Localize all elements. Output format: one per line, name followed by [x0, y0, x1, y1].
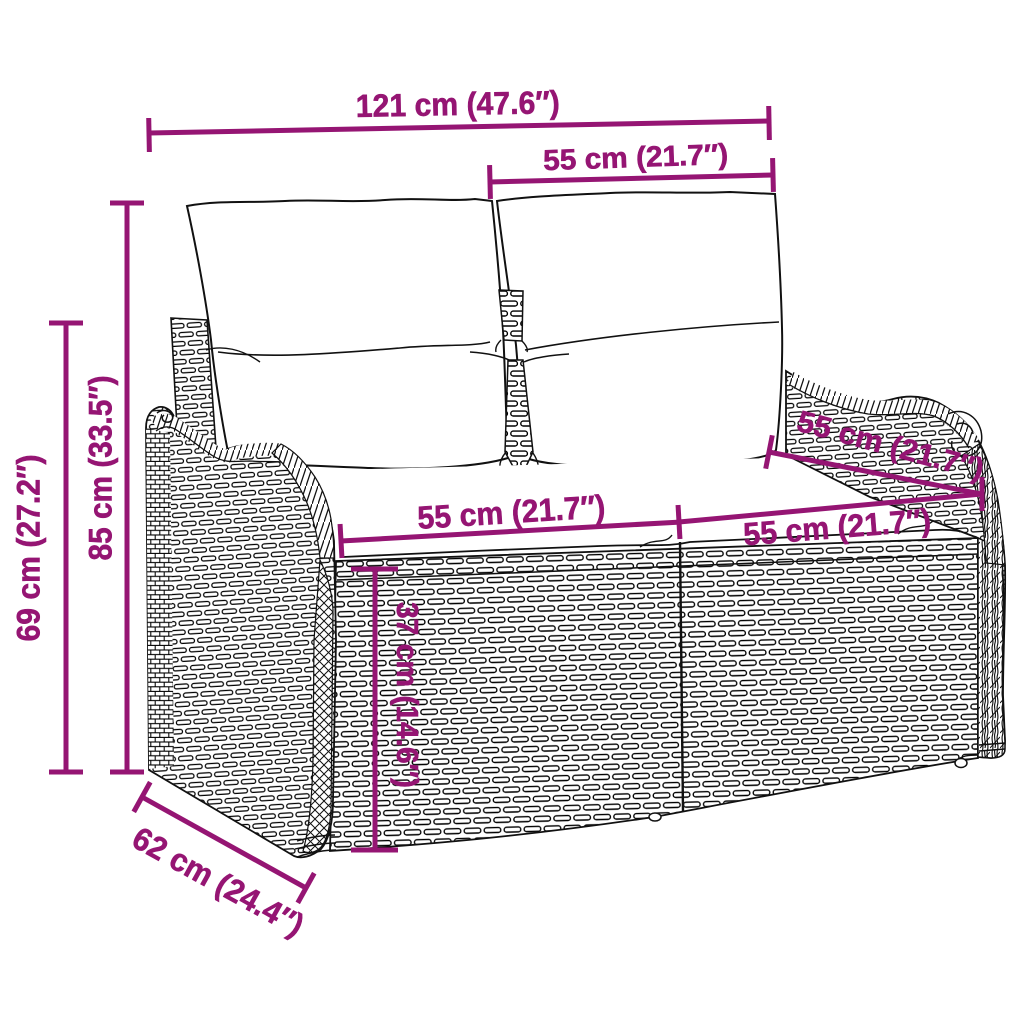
svg-text:55 cm (21.7″): 55 cm (21.7″) [543, 139, 729, 177]
svg-text:85 cm (33.5″): 85 cm (33.5″) [82, 376, 118, 561]
svg-text:69 cm (27.2″): 69 cm (27.2″) [10, 455, 46, 642]
svg-text:37 cm (14.6″): 37 cm (14.6″) [390, 602, 425, 788]
svg-text:121 cm (47.6″): 121 cm (47.6″) [355, 84, 560, 124]
